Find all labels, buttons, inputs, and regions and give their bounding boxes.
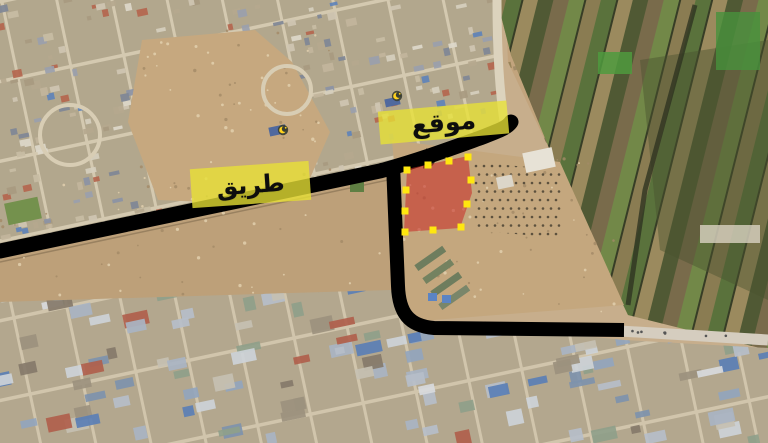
road-label: طريق	[190, 161, 311, 208]
road-label-text: طريق	[216, 168, 286, 201]
map-figure: موقع طريق	[0, 0, 768, 443]
map-annotations	[0, 0, 768, 443]
mosque-marker	[278, 125, 288, 135]
site-label-text: موقع	[410, 105, 477, 140]
mosque-marker	[392, 91, 402, 101]
